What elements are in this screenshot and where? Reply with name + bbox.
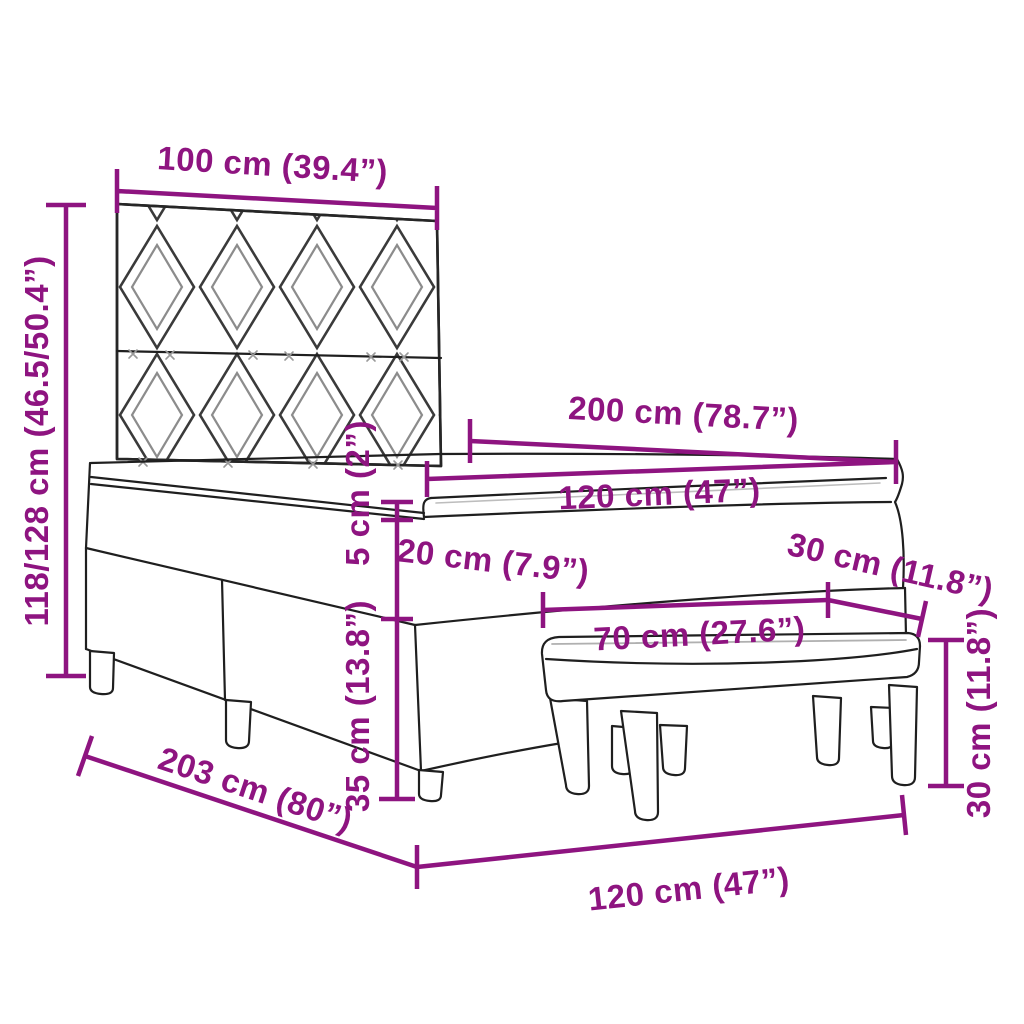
bed-left-edge	[86, 463, 90, 548]
dim-mattress-height: 20 cm (7.9”)	[381, 520, 591, 619]
dim-mattress-height-label: 20 cm (7.9”)	[395, 531, 591, 590]
bench-leg-front-left	[550, 698, 589, 794]
bed-leg-3	[419, 770, 443, 801]
dimension-diagram-page: 100 cm (39.4”) 118/128 cm (46.5/50.4”) 2…	[0, 0, 1024, 1024]
dim-bench-depth-label: 30 cm (11.8”)	[784, 525, 997, 608]
dim-bench-height-line	[928, 640, 964, 786]
bench	[542, 633, 920, 820]
dim-bench-height-label: 30 cm (11.8”)	[960, 608, 997, 818]
bed-leg-1	[90, 651, 114, 694]
dim-base-height-line	[379, 619, 415, 799]
bench-leg-front-right	[889, 685, 917, 785]
dim-bed-length-label: 200 cm (78.7”)	[567, 389, 799, 438]
base-bottom-edge-foot	[421, 743, 562, 771]
dim-mattress-width-label: 120 cm (47”)	[558, 471, 762, 517]
headboard	[117, 204, 441, 469]
dim-base-height-label: 35 cm (13.8”)	[339, 600, 376, 812]
dim-bed-total-width: 120 cm (47”)	[417, 795, 906, 918]
dim-headboard-width-label: 100 cm (39.4”)	[156, 139, 389, 190]
dim-headboard-height: 118/128 cm (46.5/50.4”)	[18, 205, 86, 676]
bed-dimension-diagram: 100 cm (39.4”) 118/128 cm (46.5/50.4”) 2…	[0, 0, 1024, 1024]
dim-topper-height-label: 5 cm (2”)	[339, 420, 376, 566]
dim-bed-total-width-label: 120 cm (47”)	[586, 860, 791, 918]
bed-leg-2	[226, 700, 251, 748]
base-right-edge	[905, 588, 906, 636]
dim-headboard-height-label: 118/128 cm (46.5/50.4”)	[18, 255, 55, 626]
dim-base-height: 35 cm (13.8”)	[339, 600, 415, 812]
dim-bench-height: 30 cm (11.8”)	[928, 608, 997, 818]
bench-leg-mid-right	[813, 696, 841, 765]
dim-mattress-width: 120 cm (47”)	[427, 461, 896, 516]
bed-drawing	[86, 204, 920, 820]
dim-bed-total-width-line	[417, 795, 906, 867]
base-corner-edge	[415, 625, 421, 771]
headboard-diamond-pattern	[117, 204, 441, 466]
topper-left-corner	[423, 498, 431, 517]
bench-leg-back-left	[660, 725, 687, 775]
base-panel-seam	[222, 580, 225, 700]
